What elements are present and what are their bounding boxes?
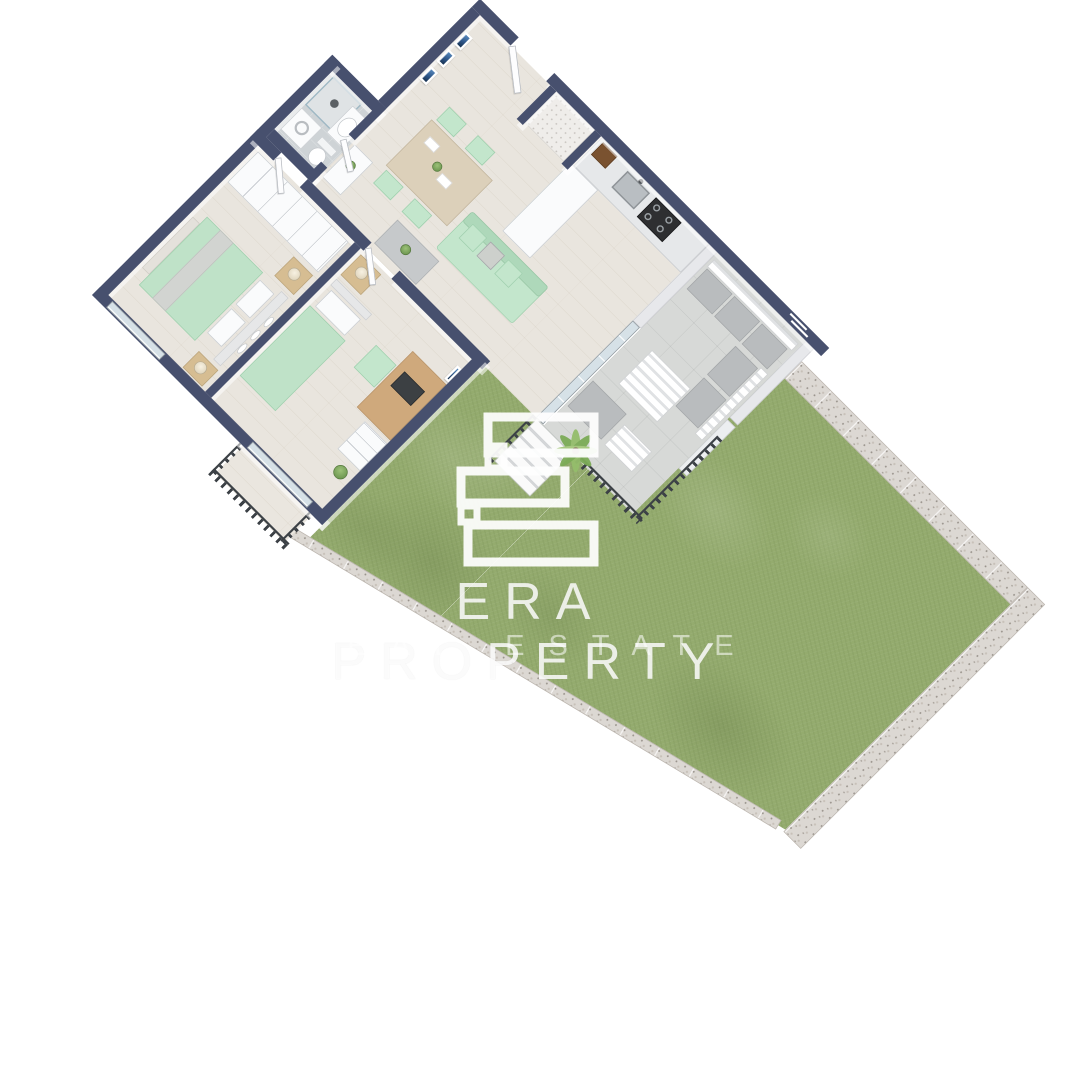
floor-plan-render: ERA PROPERTY REAL ESTATE [0, 0, 1080, 1080]
